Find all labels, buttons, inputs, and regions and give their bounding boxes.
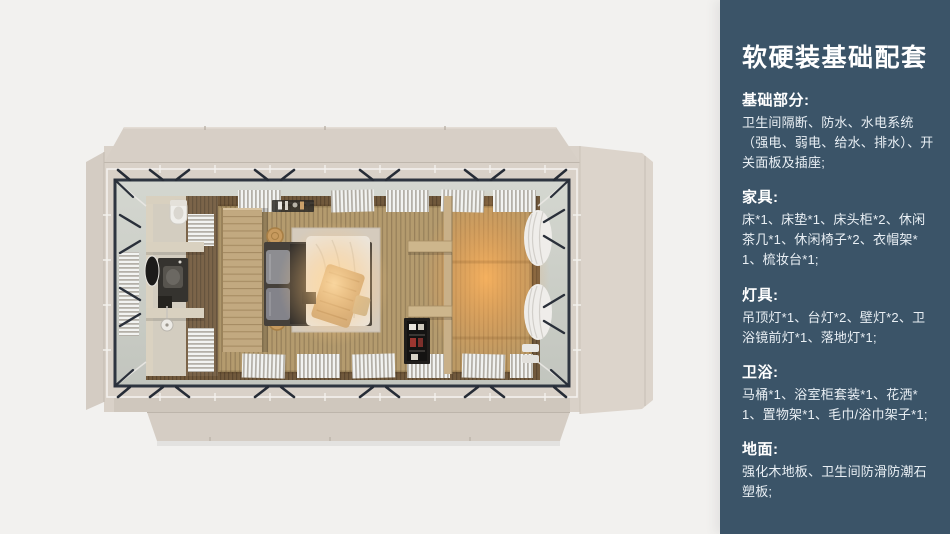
wall-shelf-1 bbox=[408, 241, 452, 252]
shell-flap-left bbox=[86, 152, 104, 410]
spec-section: 灯具: 吊顶灯*1、台灯*2、壁灯*2、卫浴镜前灯*1、落地灯*1; bbox=[742, 284, 936, 348]
partition-wall bbox=[444, 196, 452, 374]
ground-shadow bbox=[157, 441, 560, 446]
towel-stack-2 bbox=[522, 355, 539, 363]
spec-section: 基础部分: 卫生间隔断、防水、水电系统（强电、弱电、给水、排水）、开关面板及插座… bbox=[742, 89, 936, 173]
spec-section: 卫浴: 马桶*1、浴室柜套装*1、花洒*1、置物架*1、毛巾/浴巾架子*1; bbox=[742, 361, 936, 425]
towel-rack-upper bbox=[188, 214, 214, 246]
slide: 软硬装基础配套 基础部分: 卫生间隔断、防水、水电系统（强电、弱电、给水、排水）… bbox=[0, 0, 950, 534]
bed-lamp-glow bbox=[278, 222, 390, 346]
shell-flap-top bbox=[104, 127, 580, 163]
spec-section-body: 强化木地板、卫生间防滑防潮石塑板; bbox=[742, 462, 936, 502]
vanity-stool bbox=[158, 296, 172, 308]
wardrobe bbox=[222, 208, 268, 352]
red-books bbox=[410, 338, 416, 347]
vanity-mirror bbox=[145, 256, 159, 286]
toilet bbox=[170, 200, 187, 224]
spec-section-body: 吊顶灯*1、台灯*2、壁灯*2、卫浴镜前灯*1、落地灯*1; bbox=[742, 308, 936, 348]
panel-title: 软硬装基础配套 bbox=[742, 44, 936, 73]
spec-panel: 软硬装基础配套 基础部分: 卫生间隔断、防水、水电系统（强电、弱电、给水、排水）… bbox=[720, 0, 950, 534]
spec-section-body: 马桶*1、浴室柜套装*1、花洒*1、置物架*1、毛巾/浴巾架子*1; bbox=[742, 385, 936, 425]
shell-fold-bottom bbox=[114, 398, 570, 412]
bathroom-shelf-2 bbox=[146, 308, 204, 318]
towel-stack-1 bbox=[522, 344, 539, 352]
spec-section-heading: 家具: bbox=[742, 186, 936, 207]
wall-shelf-2 bbox=[408, 306, 452, 317]
coat-rack bbox=[272, 200, 314, 212]
floorplan-render bbox=[0, 0, 720, 534]
shell-flap-right bbox=[580, 146, 653, 414]
spec-section-heading: 灯具: bbox=[742, 284, 936, 305]
spec-section-heading: 基础部分: bbox=[742, 89, 936, 110]
floorplan-svg bbox=[0, 0, 720, 534]
towel-rack-lower bbox=[188, 328, 214, 372]
spec-section-heading: 卫浴: bbox=[742, 361, 936, 382]
bathroom bbox=[145, 196, 218, 376]
spec-section-heading: 地面: bbox=[742, 438, 936, 459]
spec-section: 家具: 床*1、床垫*1、床头柜*2、休闲茶几*1、休闲椅子*2、衣帽架*1、梳… bbox=[742, 186, 936, 270]
shell-flap-bottom bbox=[147, 412, 570, 441]
spec-section-body: 卫生间隔断、防水、水电系统（强电、弱电、给水、排水）、开关面板及插座; bbox=[742, 113, 936, 173]
bathroom-shelf-1 bbox=[146, 242, 204, 252]
basket-top bbox=[267, 228, 283, 244]
spec-section-body: 床*1、床垫*1、床头柜*2、休闲茶几*1、休闲椅子*2、衣帽架*1、梳妆台*1… bbox=[742, 210, 936, 270]
panel-sections: 基础部分: 卫生间隔断、防水、水电系统（强电、弱电、给水、排水）、开关面板及插座… bbox=[742, 89, 936, 503]
spec-section: 地面: 强化木地板、卫生间防滑防潮石塑板; bbox=[742, 438, 936, 502]
bookshelf bbox=[404, 318, 430, 364]
